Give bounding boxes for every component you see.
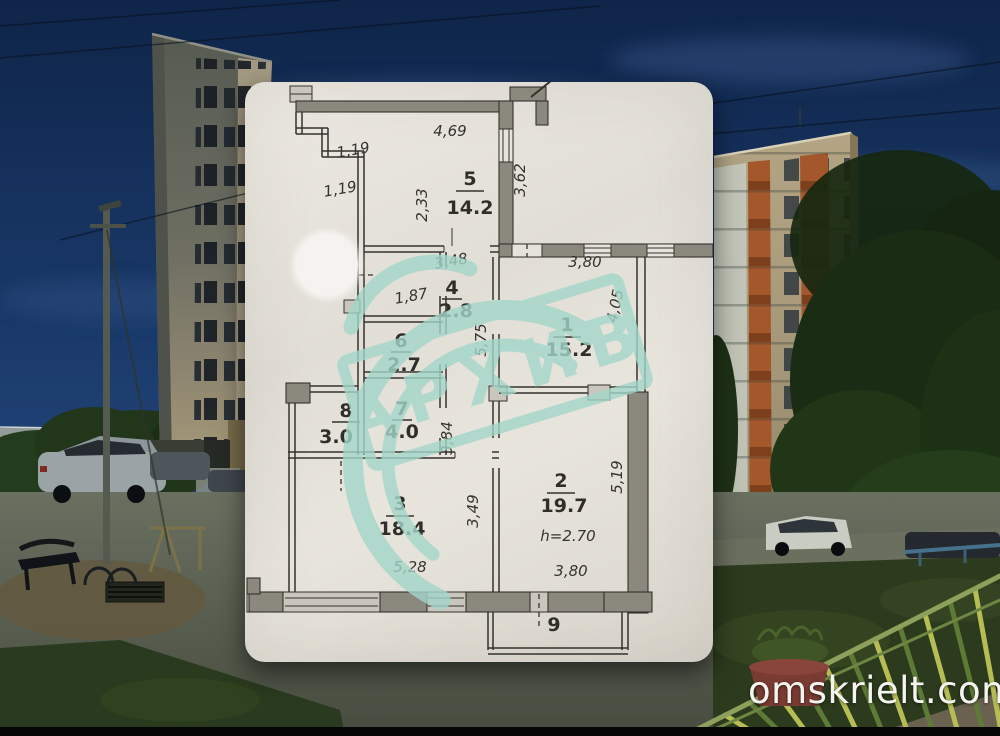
dirt-patch bbox=[0, 560, 205, 640]
room-9-number: 9 bbox=[547, 614, 560, 636]
room-5-number: 5 bbox=[463, 168, 476, 190]
bottom-letterbox-bar bbox=[0, 727, 1000, 736]
dim-room5-left: 2,33 bbox=[413, 188, 431, 221]
dim-room2-right: 5,19 bbox=[608, 460, 626, 493]
dim-step-a: 1,19 bbox=[335, 138, 371, 162]
dim-room5-top: 4,69 bbox=[433, 122, 466, 140]
room-2-number: 2 bbox=[554, 470, 567, 492]
dim-room1-top: 3,80 bbox=[568, 253, 601, 271]
dim-room5-right: 3,62 bbox=[511, 163, 529, 196]
floorplan-paper: 5 14.2 4 2.8 6 2.7 7 4.0 8 3.0 3 18.4 2 bbox=[245, 82, 713, 662]
dim-room4-left: 1,87 bbox=[393, 284, 429, 308]
dim-step-b: 1,19 bbox=[322, 177, 358, 201]
site-watermark: omskrielt.com bbox=[748, 672, 1000, 709]
screenshot-stage: 5 14.2 4 2.8 6 2.7 7 4.0 8 3.0 3 18.4 2 bbox=[0, 0, 1000, 736]
white-circle-overlay bbox=[296, 234, 358, 296]
dim-room3-right: 3,49 bbox=[464, 494, 482, 527]
room-4-number: 4 bbox=[445, 277, 458, 299]
room-2-ceiling-height: h=2.70 bbox=[540, 527, 595, 545]
room-5-area: 14.2 bbox=[447, 197, 494, 219]
parked-car bbox=[150, 452, 210, 480]
room-2-area: 19.7 bbox=[541, 495, 588, 517]
dim-room2-bottom: 3,80 bbox=[554, 562, 587, 580]
floorplan: 5 14.2 4 2.8 6 2.7 7 4.0 8 3.0 3 18.4 2 bbox=[245, 82, 713, 662]
